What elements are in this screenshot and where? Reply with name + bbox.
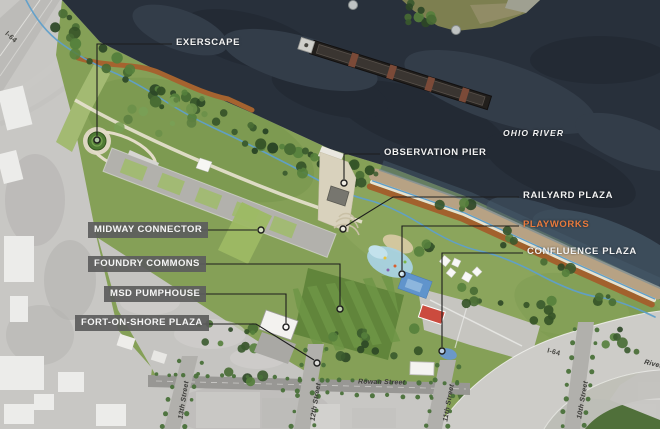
label-midway-connector: MIDWAY CONNECTOR (88, 222, 208, 238)
park-master-plan-map: EXERSCAPE OBSERVATION PIER RAILYARD PLAZ… (0, 0, 660, 429)
site-plan-rendering (0, 0, 660, 429)
label-railyard-plaza: RAILYARD PLAZA (523, 191, 613, 201)
label-msd-pumphouse: MSD PUMPHOUSE (104, 286, 206, 302)
label-confluence-plaza: CONFLUENCE PLAZA (527, 247, 637, 257)
label-observation-pier: OBSERVATION PIER (384, 148, 487, 158)
label-ohio-river: OHIO RIVER (503, 129, 564, 138)
label-fort-on-shore-plaza: FORT-ON-SHORE PLAZA (75, 315, 209, 331)
label-exerscape: EXERSCAPE (176, 38, 240, 48)
label-rowan-street: Rowan Street (358, 379, 405, 387)
label-foundry-commons: FOUNDRY COMMONS (88, 256, 206, 272)
label-playworks: PLAYWORKS (523, 220, 589, 230)
